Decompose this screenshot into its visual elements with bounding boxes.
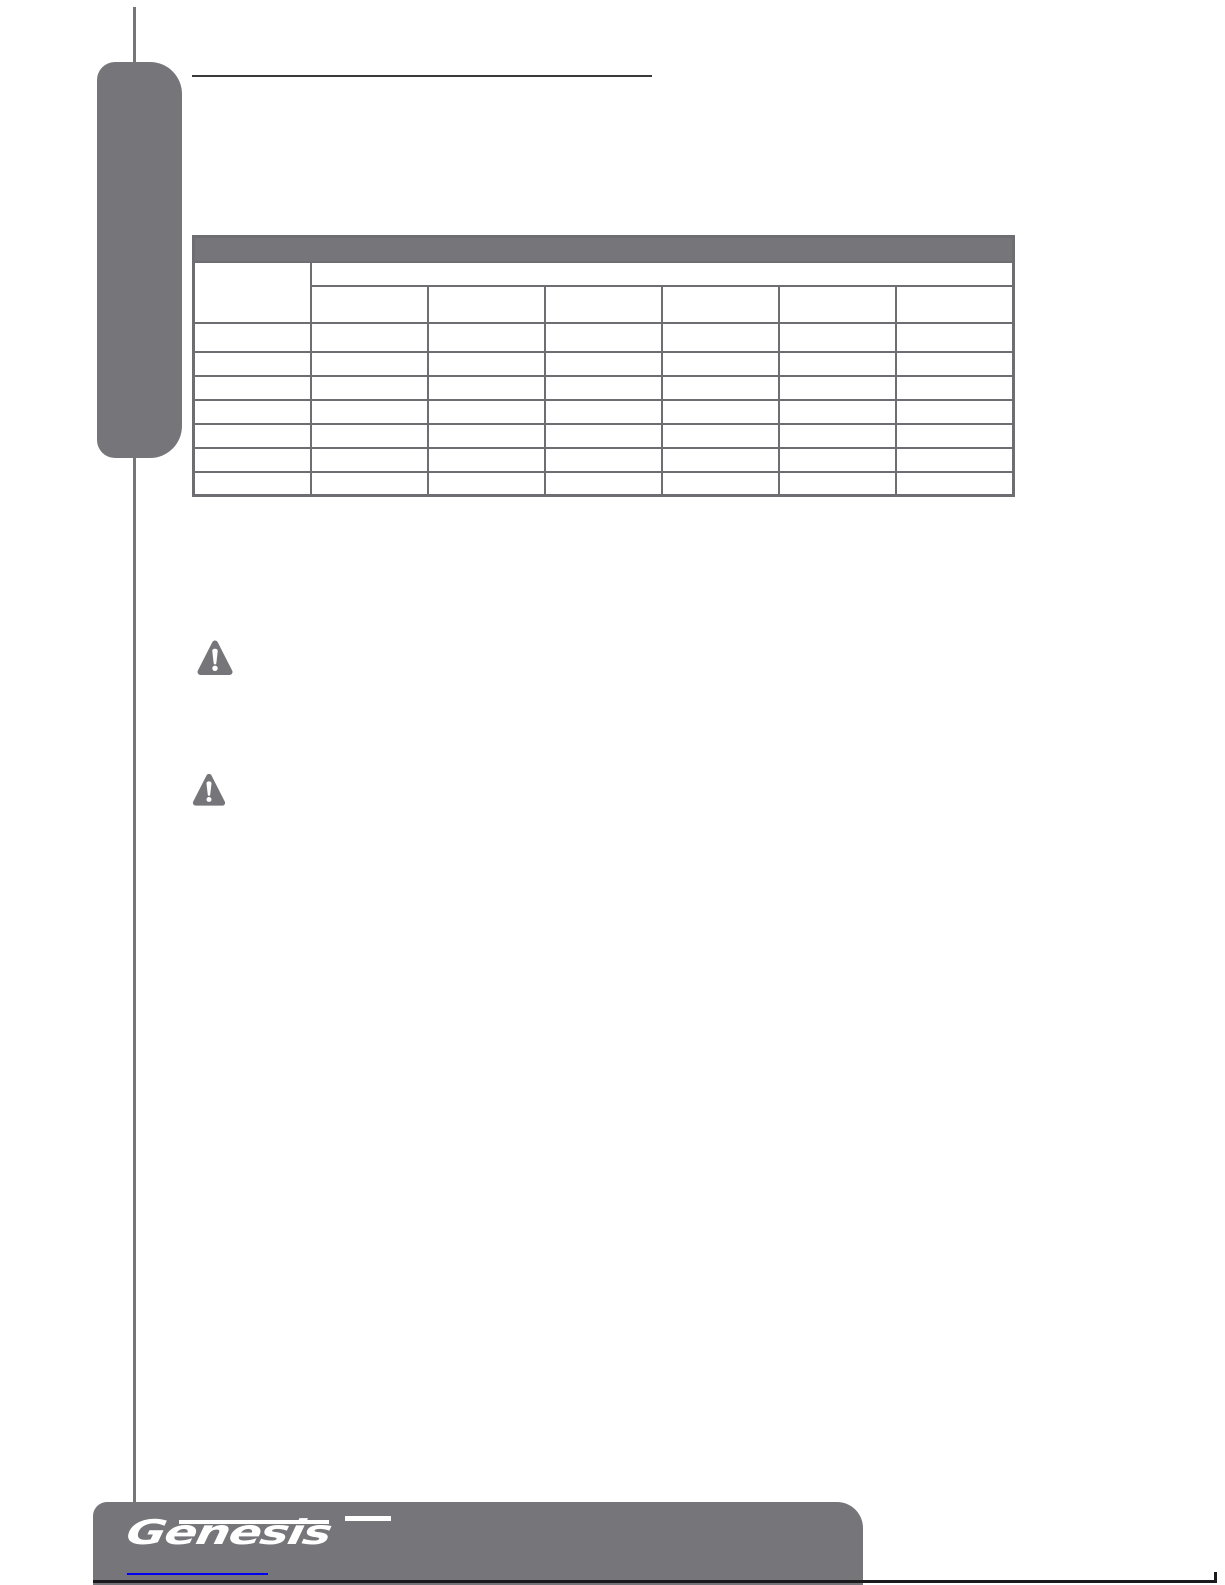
table-cell: [545, 352, 662, 376]
section-side-tab: [97, 62, 182, 458]
table-row: [194, 352, 1014, 376]
table-row: [194, 376, 1014, 400]
table-cell: [428, 448, 545, 472]
table-cell: [194, 424, 311, 448]
table-cell: [194, 448, 311, 472]
table-row: [194, 400, 1014, 424]
page-bottom-rule: [93, 1580, 1217, 1583]
table-cell: [311, 376, 428, 400]
table-cell: [428, 400, 545, 424]
warning-icon: [197, 638, 233, 677]
table-cell: [896, 400, 1014, 424]
section-heading-underline: [192, 75, 652, 77]
table-cell: [779, 472, 896, 496]
table-cell: [311, 323, 428, 352]
table-row: [194, 472, 1014, 496]
table-cell: [545, 472, 662, 496]
table-cell: [662, 352, 779, 376]
table-cell: [779, 448, 896, 472]
table-cell: [311, 472, 428, 496]
table-cell: [194, 400, 311, 424]
table-cell: [779, 376, 896, 400]
spec-table: [192, 235, 1015, 497]
table-row: [194, 448, 1014, 472]
table-row: [194, 323, 1014, 352]
footer-link-underline[interactable]: [127, 1573, 268, 1575]
table-cell: [896, 352, 1014, 376]
table-rowheader-cell: [194, 262, 311, 323]
table-cell: [896, 376, 1014, 400]
column-header-cell: [662, 286, 779, 323]
column-header-row: [194, 286, 1014, 323]
page-bottom-rule-tick: [1214, 1572, 1217, 1581]
column-header-cell: [779, 286, 896, 323]
table-group-row: [194, 262, 1014, 286]
table-cell: [662, 472, 779, 496]
table-groupheader-cell: [311, 262, 1014, 286]
table-cell: [896, 323, 1014, 352]
table-cell: [662, 424, 779, 448]
table-cell: [662, 376, 779, 400]
genesis-logo-overline: [179, 1520, 329, 1524]
table-cell: [779, 424, 896, 448]
table-cell: [428, 376, 545, 400]
table-banner-cell: [194, 237, 1014, 262]
table-cell: [428, 323, 545, 352]
table-cell: [311, 400, 428, 424]
warning-icon: [192, 772, 226, 807]
table-cell: [545, 448, 662, 472]
table-cell: [194, 352, 311, 376]
table-cell: [428, 472, 545, 496]
table-row: [194, 424, 1014, 448]
table-cell: [194, 376, 311, 400]
table-cell: [428, 424, 545, 448]
table-cell: [779, 400, 896, 424]
table-cell: [545, 323, 662, 352]
table-cell: [662, 323, 779, 352]
column-header-cell: [428, 286, 545, 323]
genesis-logo: Genesis: [117, 1508, 417, 1558]
table-cell: [896, 424, 1014, 448]
column-header-cell: [896, 286, 1014, 323]
table-cell: [428, 352, 545, 376]
table-cell: [311, 352, 428, 376]
table-cell: [779, 352, 896, 376]
table-cell: [545, 424, 662, 448]
table-banner-row: [194, 237, 1014, 262]
table-cell: [545, 400, 662, 424]
table-cell: [194, 472, 311, 496]
table-cell: [311, 448, 428, 472]
table-cell: [779, 323, 896, 352]
table-cell: [545, 376, 662, 400]
column-header-cell: [545, 286, 662, 323]
table-cell: [662, 400, 779, 424]
column-header-cell: [311, 286, 428, 323]
genesis-logo-overline-short: [345, 1516, 391, 1521]
document-page: Genesis: [0, 0, 1225, 1585]
table-cell: [194, 323, 311, 352]
table-cell: [896, 472, 1014, 496]
table-cell: [311, 424, 428, 448]
table-body: [194, 323, 1014, 496]
table-cell: [662, 448, 779, 472]
table-cell: [896, 448, 1014, 472]
